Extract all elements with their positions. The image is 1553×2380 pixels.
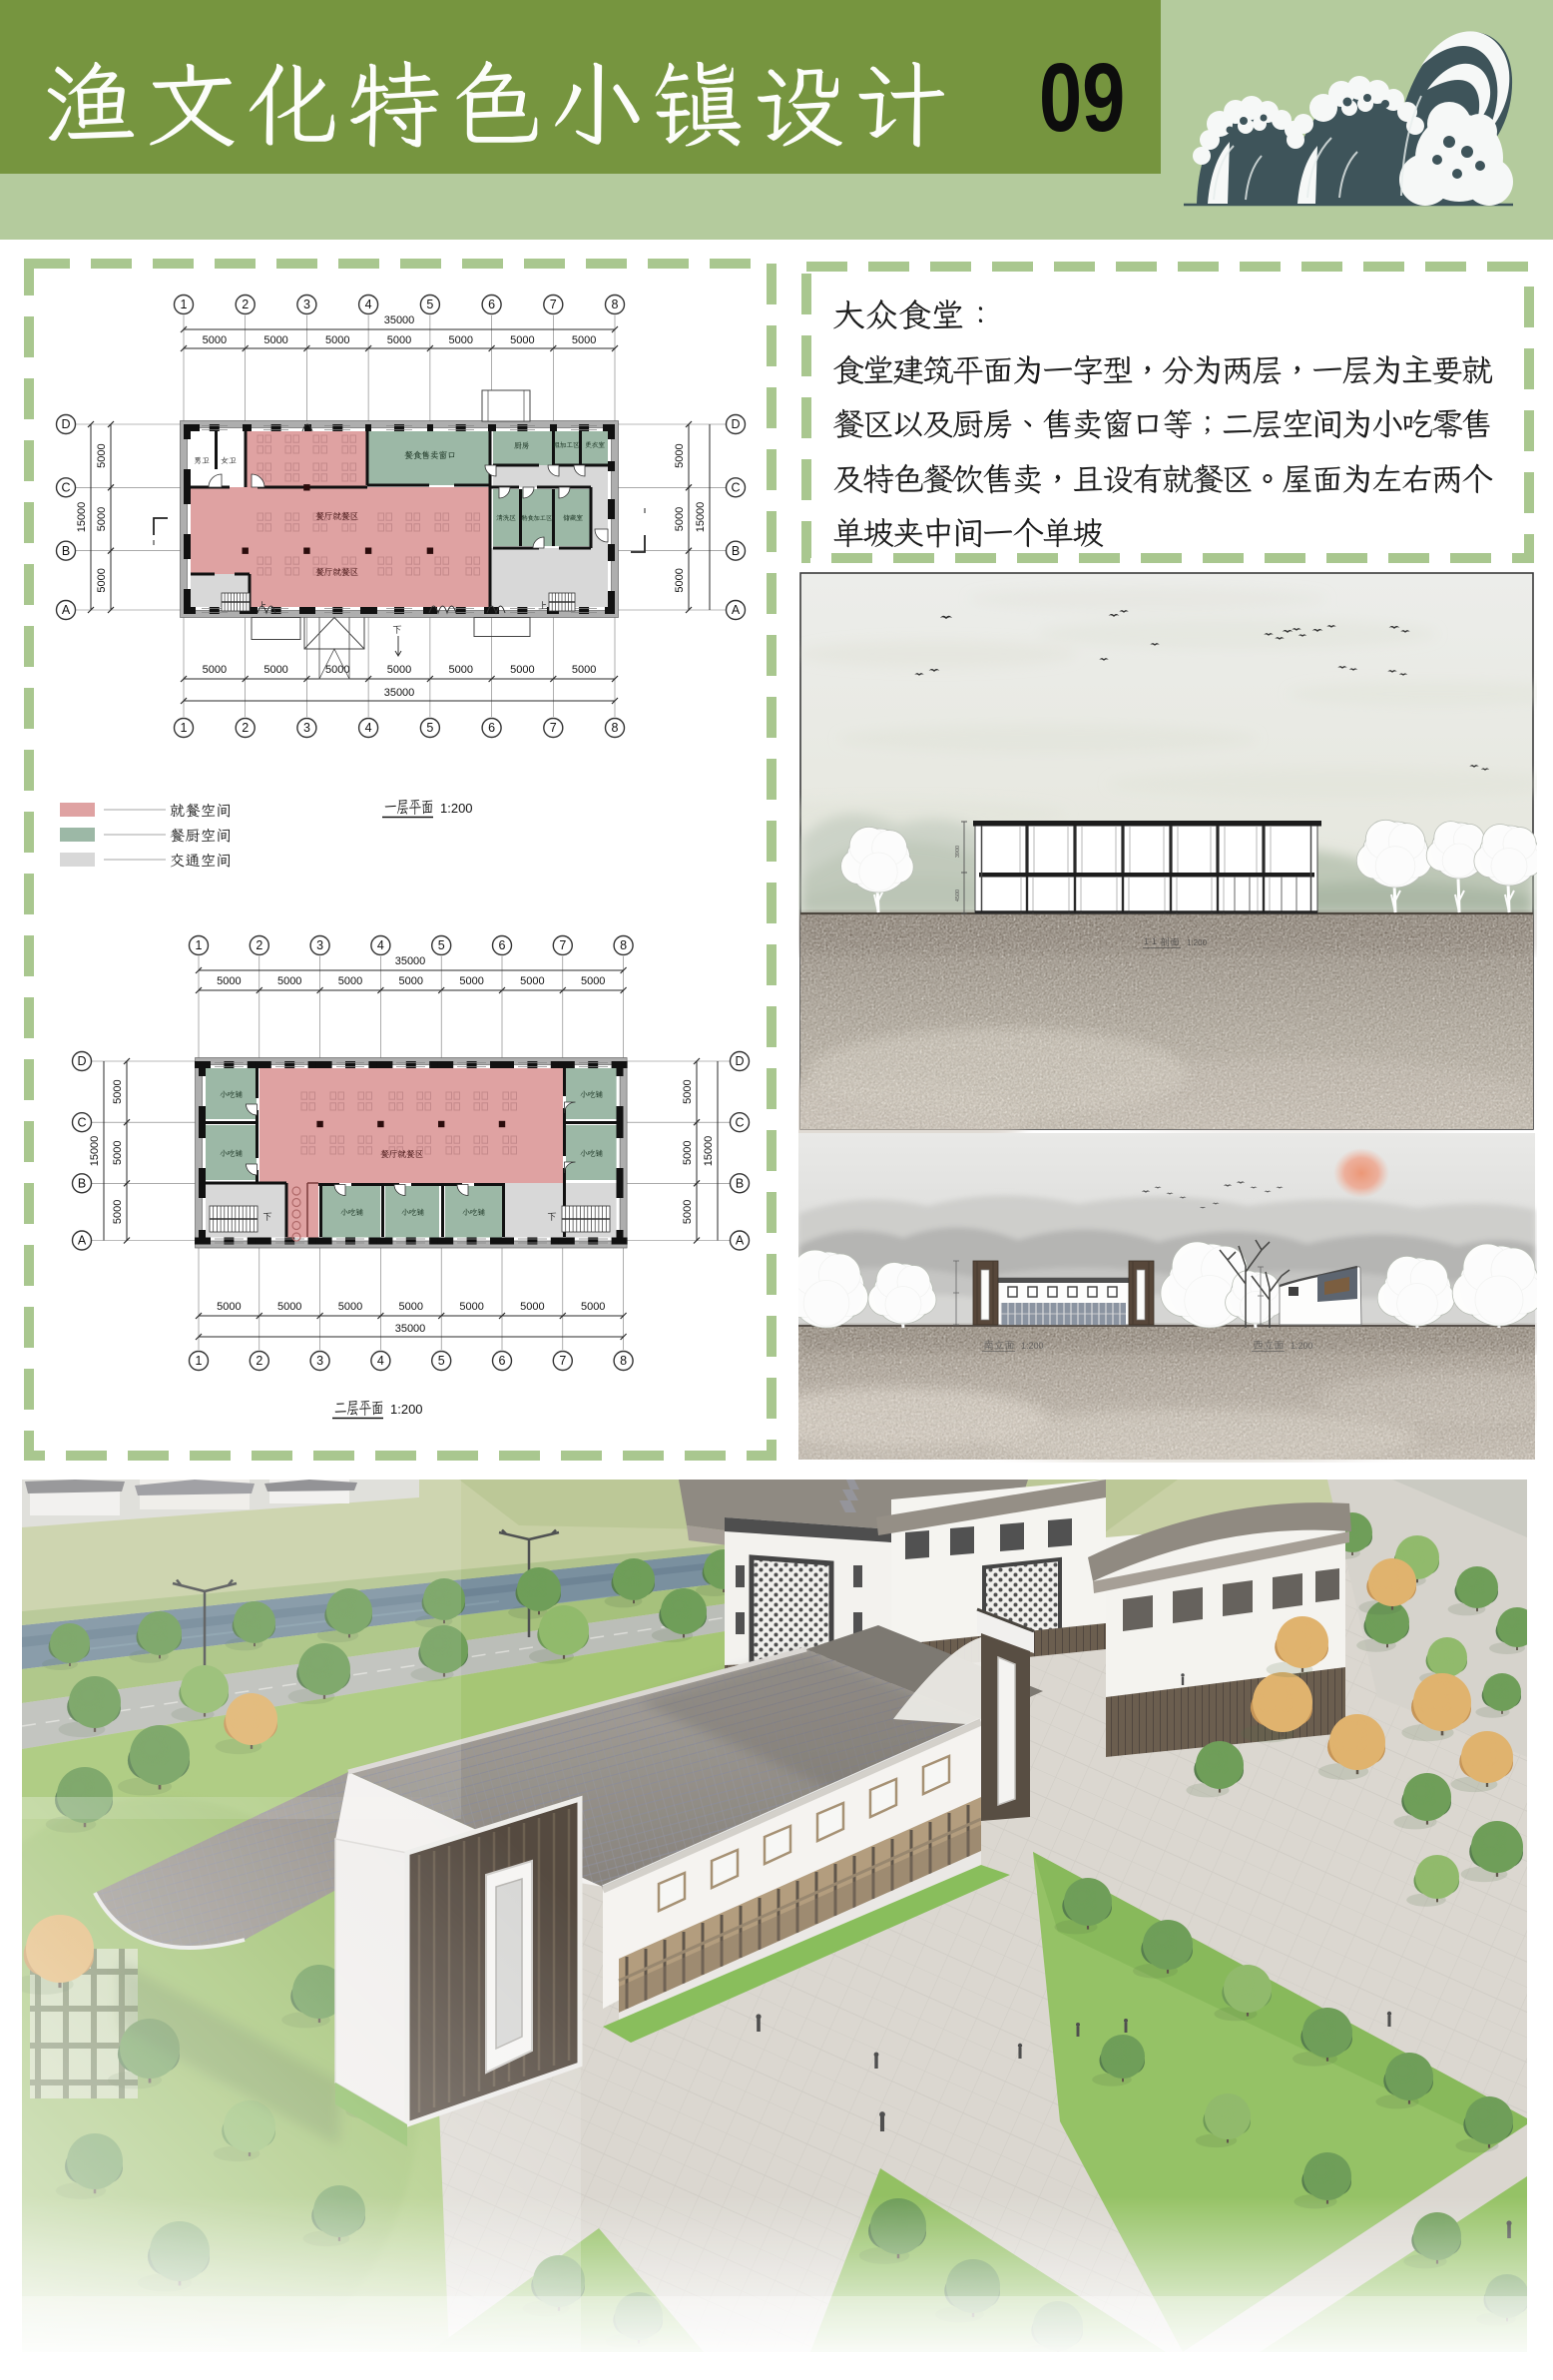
svg-text:5000: 5000 (674, 443, 686, 467)
svg-text:7: 7 (559, 1354, 566, 1368)
svg-text:5000: 5000 (399, 1301, 423, 1313)
svg-text:5000: 5000 (682, 1079, 694, 1103)
svg-text:35000: 35000 (395, 955, 426, 967)
svg-text:D: D (61, 417, 70, 431)
svg-text:5000: 5000 (572, 334, 596, 346)
svg-text:5000: 5000 (263, 664, 287, 676)
svg-text:2: 2 (242, 297, 249, 311)
svg-text:7: 7 (550, 297, 557, 311)
svg-text:A: A (62, 603, 71, 617)
svg-text:5000: 5000 (96, 507, 108, 531)
svg-text:7: 7 (550, 721, 557, 735)
svg-text:1:200: 1:200 (440, 801, 473, 816)
svg-text:5000: 5000 (459, 1301, 483, 1313)
svg-text:3: 3 (316, 938, 323, 952)
svg-text:3900: 3900 (955, 846, 961, 858)
svg-text:6: 6 (499, 938, 506, 952)
svg-text:A: A (78, 1234, 87, 1248)
svg-text:B: B (732, 544, 740, 558)
svg-text:5000: 5000 (520, 1301, 544, 1313)
svg-text:5000: 5000 (520, 975, 544, 987)
svg-text:C: C (731, 481, 740, 495)
svg-text:5000: 5000 (277, 1301, 301, 1313)
svg-text:35000: 35000 (395, 1323, 426, 1335)
svg-text:5000: 5000 (510, 664, 534, 676)
svg-text:15000: 15000 (76, 502, 88, 533)
svg-text:5000: 5000 (112, 1079, 124, 1103)
svg-text:7: 7 (559, 938, 566, 952)
svg-text:4500: 4500 (955, 890, 961, 901)
svg-text:3: 3 (303, 721, 310, 735)
svg-text:B: B (78, 1177, 86, 1191)
svg-text:15000: 15000 (695, 502, 707, 533)
svg-text:1:200: 1:200 (1187, 938, 1208, 947)
svg-text:1:200: 1:200 (1291, 1341, 1313, 1351)
svg-text:1: 1 (181, 721, 188, 735)
svg-text:5000: 5000 (682, 1200, 694, 1224)
svg-text:5000: 5000 (448, 334, 472, 346)
svg-text:5000: 5000 (387, 664, 411, 676)
svg-text:B: B (736, 1177, 744, 1191)
svg-text:5000: 5000 (112, 1200, 124, 1224)
svg-text:5000: 5000 (399, 975, 423, 987)
svg-text:5000: 5000 (325, 334, 349, 346)
svg-text:5000: 5000 (203, 664, 227, 676)
svg-text:5000: 5000 (217, 1301, 241, 1313)
svg-text:5000: 5000 (581, 1301, 605, 1313)
svg-text:5000: 5000 (203, 334, 227, 346)
svg-text:3: 3 (303, 297, 310, 311)
svg-text:5000: 5000 (459, 975, 483, 987)
svg-text:8: 8 (620, 1354, 627, 1368)
svg-text:5000: 5000 (112, 1141, 124, 1165)
svg-text:2: 2 (256, 938, 262, 952)
svg-text:2: 2 (242, 721, 249, 735)
svg-text:6: 6 (499, 1354, 506, 1368)
svg-text:C: C (735, 1115, 744, 1129)
svg-text:A: A (732, 603, 741, 617)
svg-text:5000: 5000 (263, 334, 287, 346)
svg-text:5000: 5000 (325, 664, 349, 676)
svg-text:4: 4 (377, 938, 384, 952)
svg-text:5000: 5000 (510, 334, 534, 346)
svg-text:D: D (77, 1054, 86, 1068)
svg-text:D: D (735, 1054, 744, 1068)
svg-text:4: 4 (365, 721, 372, 735)
svg-text:D: D (731, 417, 740, 431)
svg-text:1:200: 1:200 (1021, 1341, 1044, 1351)
svg-text:5000: 5000 (217, 975, 241, 987)
svg-text:1: 1 (196, 938, 203, 952)
svg-text:A: A (736, 1234, 745, 1248)
svg-text:5: 5 (426, 297, 433, 311)
svg-text:5000: 5000 (387, 334, 411, 346)
svg-text:8: 8 (620, 938, 627, 952)
svg-text:4: 4 (377, 1354, 384, 1368)
svg-text:6: 6 (488, 721, 495, 735)
svg-text:8: 8 (612, 297, 619, 311)
svg-text:5000: 5000 (581, 975, 605, 987)
svg-text:15000: 15000 (89, 1136, 101, 1167)
svg-text:35000: 35000 (384, 687, 415, 699)
svg-text:5000: 5000 (682, 1141, 694, 1165)
svg-text:15000: 15000 (703, 1136, 715, 1167)
svg-text:C: C (61, 481, 70, 495)
svg-text:2: 2 (256, 1354, 262, 1368)
svg-text:C: C (77, 1115, 86, 1129)
svg-text:8: 8 (612, 721, 619, 735)
svg-text:1-1: 1-1 (1144, 936, 1157, 946)
svg-text:3: 3 (316, 1354, 323, 1368)
svg-text:5000: 5000 (572, 664, 596, 676)
svg-text:B: B (62, 544, 70, 558)
svg-text:1: 1 (196, 1354, 203, 1368)
svg-text:5000: 5000 (277, 975, 301, 987)
svg-text:5: 5 (438, 938, 445, 952)
svg-text:5000: 5000 (448, 664, 472, 676)
svg-text:4: 4 (365, 297, 372, 311)
svg-text:35000: 35000 (384, 314, 415, 326)
svg-text:09: 09 (1039, 43, 1125, 152)
svg-text:6: 6 (488, 297, 495, 311)
svg-text:5: 5 (426, 721, 433, 735)
svg-text:5000: 5000 (338, 975, 362, 987)
svg-text:5: 5 (438, 1354, 445, 1368)
svg-text:1: 1 (181, 297, 188, 311)
svg-text:5000: 5000 (96, 443, 108, 467)
svg-text:5000: 5000 (674, 568, 686, 592)
svg-text:5000: 5000 (674, 507, 686, 531)
svg-text:5000: 5000 (96, 568, 108, 592)
svg-text:1:200: 1:200 (390, 1402, 423, 1417)
svg-text:5000: 5000 (338, 1301, 362, 1313)
